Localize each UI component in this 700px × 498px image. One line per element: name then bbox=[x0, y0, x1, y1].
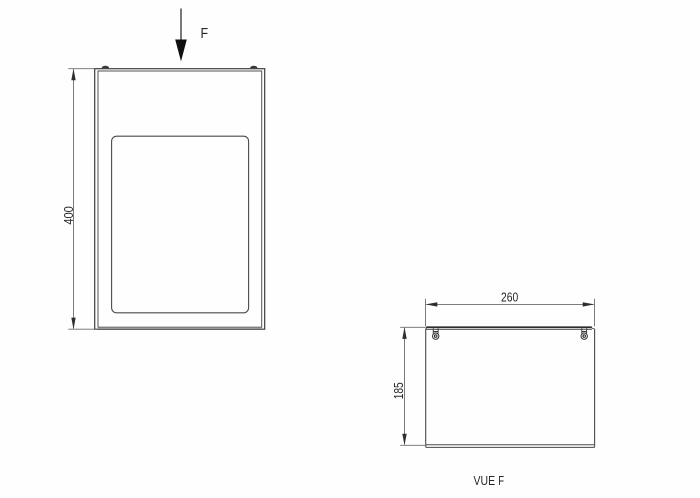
svg-text:VUE: VUE bbox=[474, 473, 496, 488]
svg-text:260: 260 bbox=[501, 290, 518, 305]
svg-text:F: F bbox=[201, 26, 209, 42]
svg-text:F: F bbox=[498, 473, 504, 488]
svg-text:185: 185 bbox=[391, 382, 406, 399]
svg-text:400: 400 bbox=[61, 206, 76, 225]
